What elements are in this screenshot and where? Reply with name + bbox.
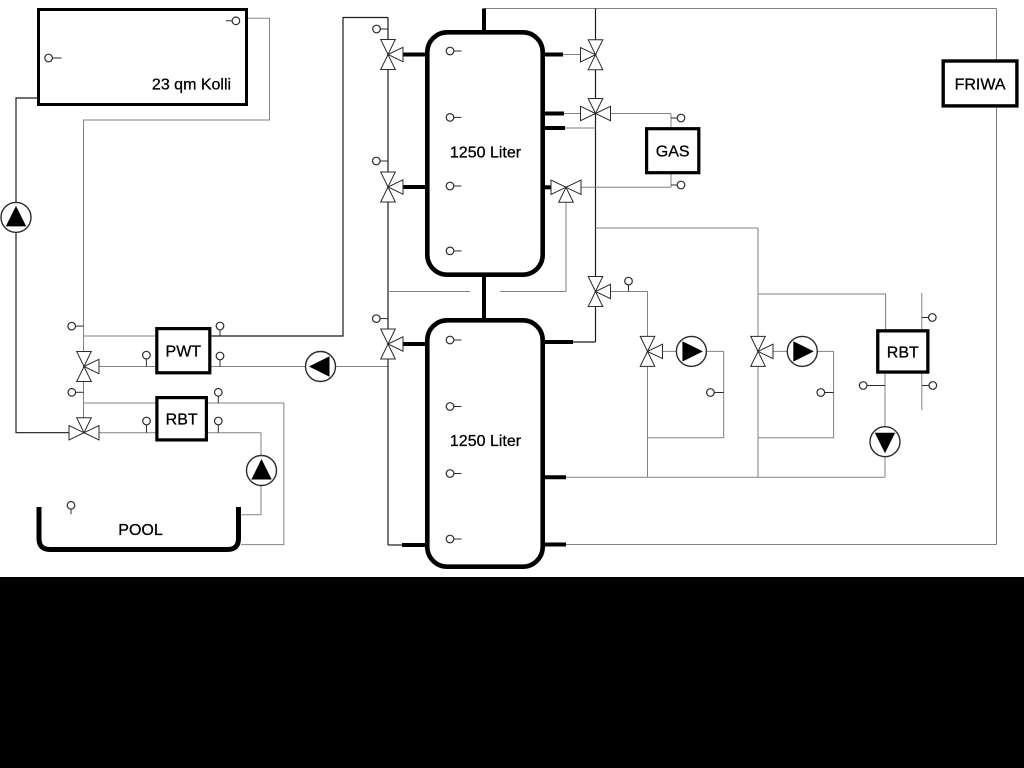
- svg-text:GAS: GAS: [656, 144, 690, 161]
- svg-text:1250 Liter: 1250 Liter: [450, 144, 522, 161]
- svg-text:23 qm Kolli: 23 qm Kolli: [152, 76, 231, 93]
- svg-text:1250 Liter: 1250 Liter: [450, 433, 522, 450]
- svg-text:RBT: RBT: [166, 412, 198, 429]
- svg-text:PWT: PWT: [166, 344, 202, 361]
- svg-text:FRIWA: FRIWA: [955, 76, 1006, 93]
- svg-text:POOL: POOL: [118, 522, 163, 539]
- svg-text:RBT: RBT: [887, 344, 919, 361]
